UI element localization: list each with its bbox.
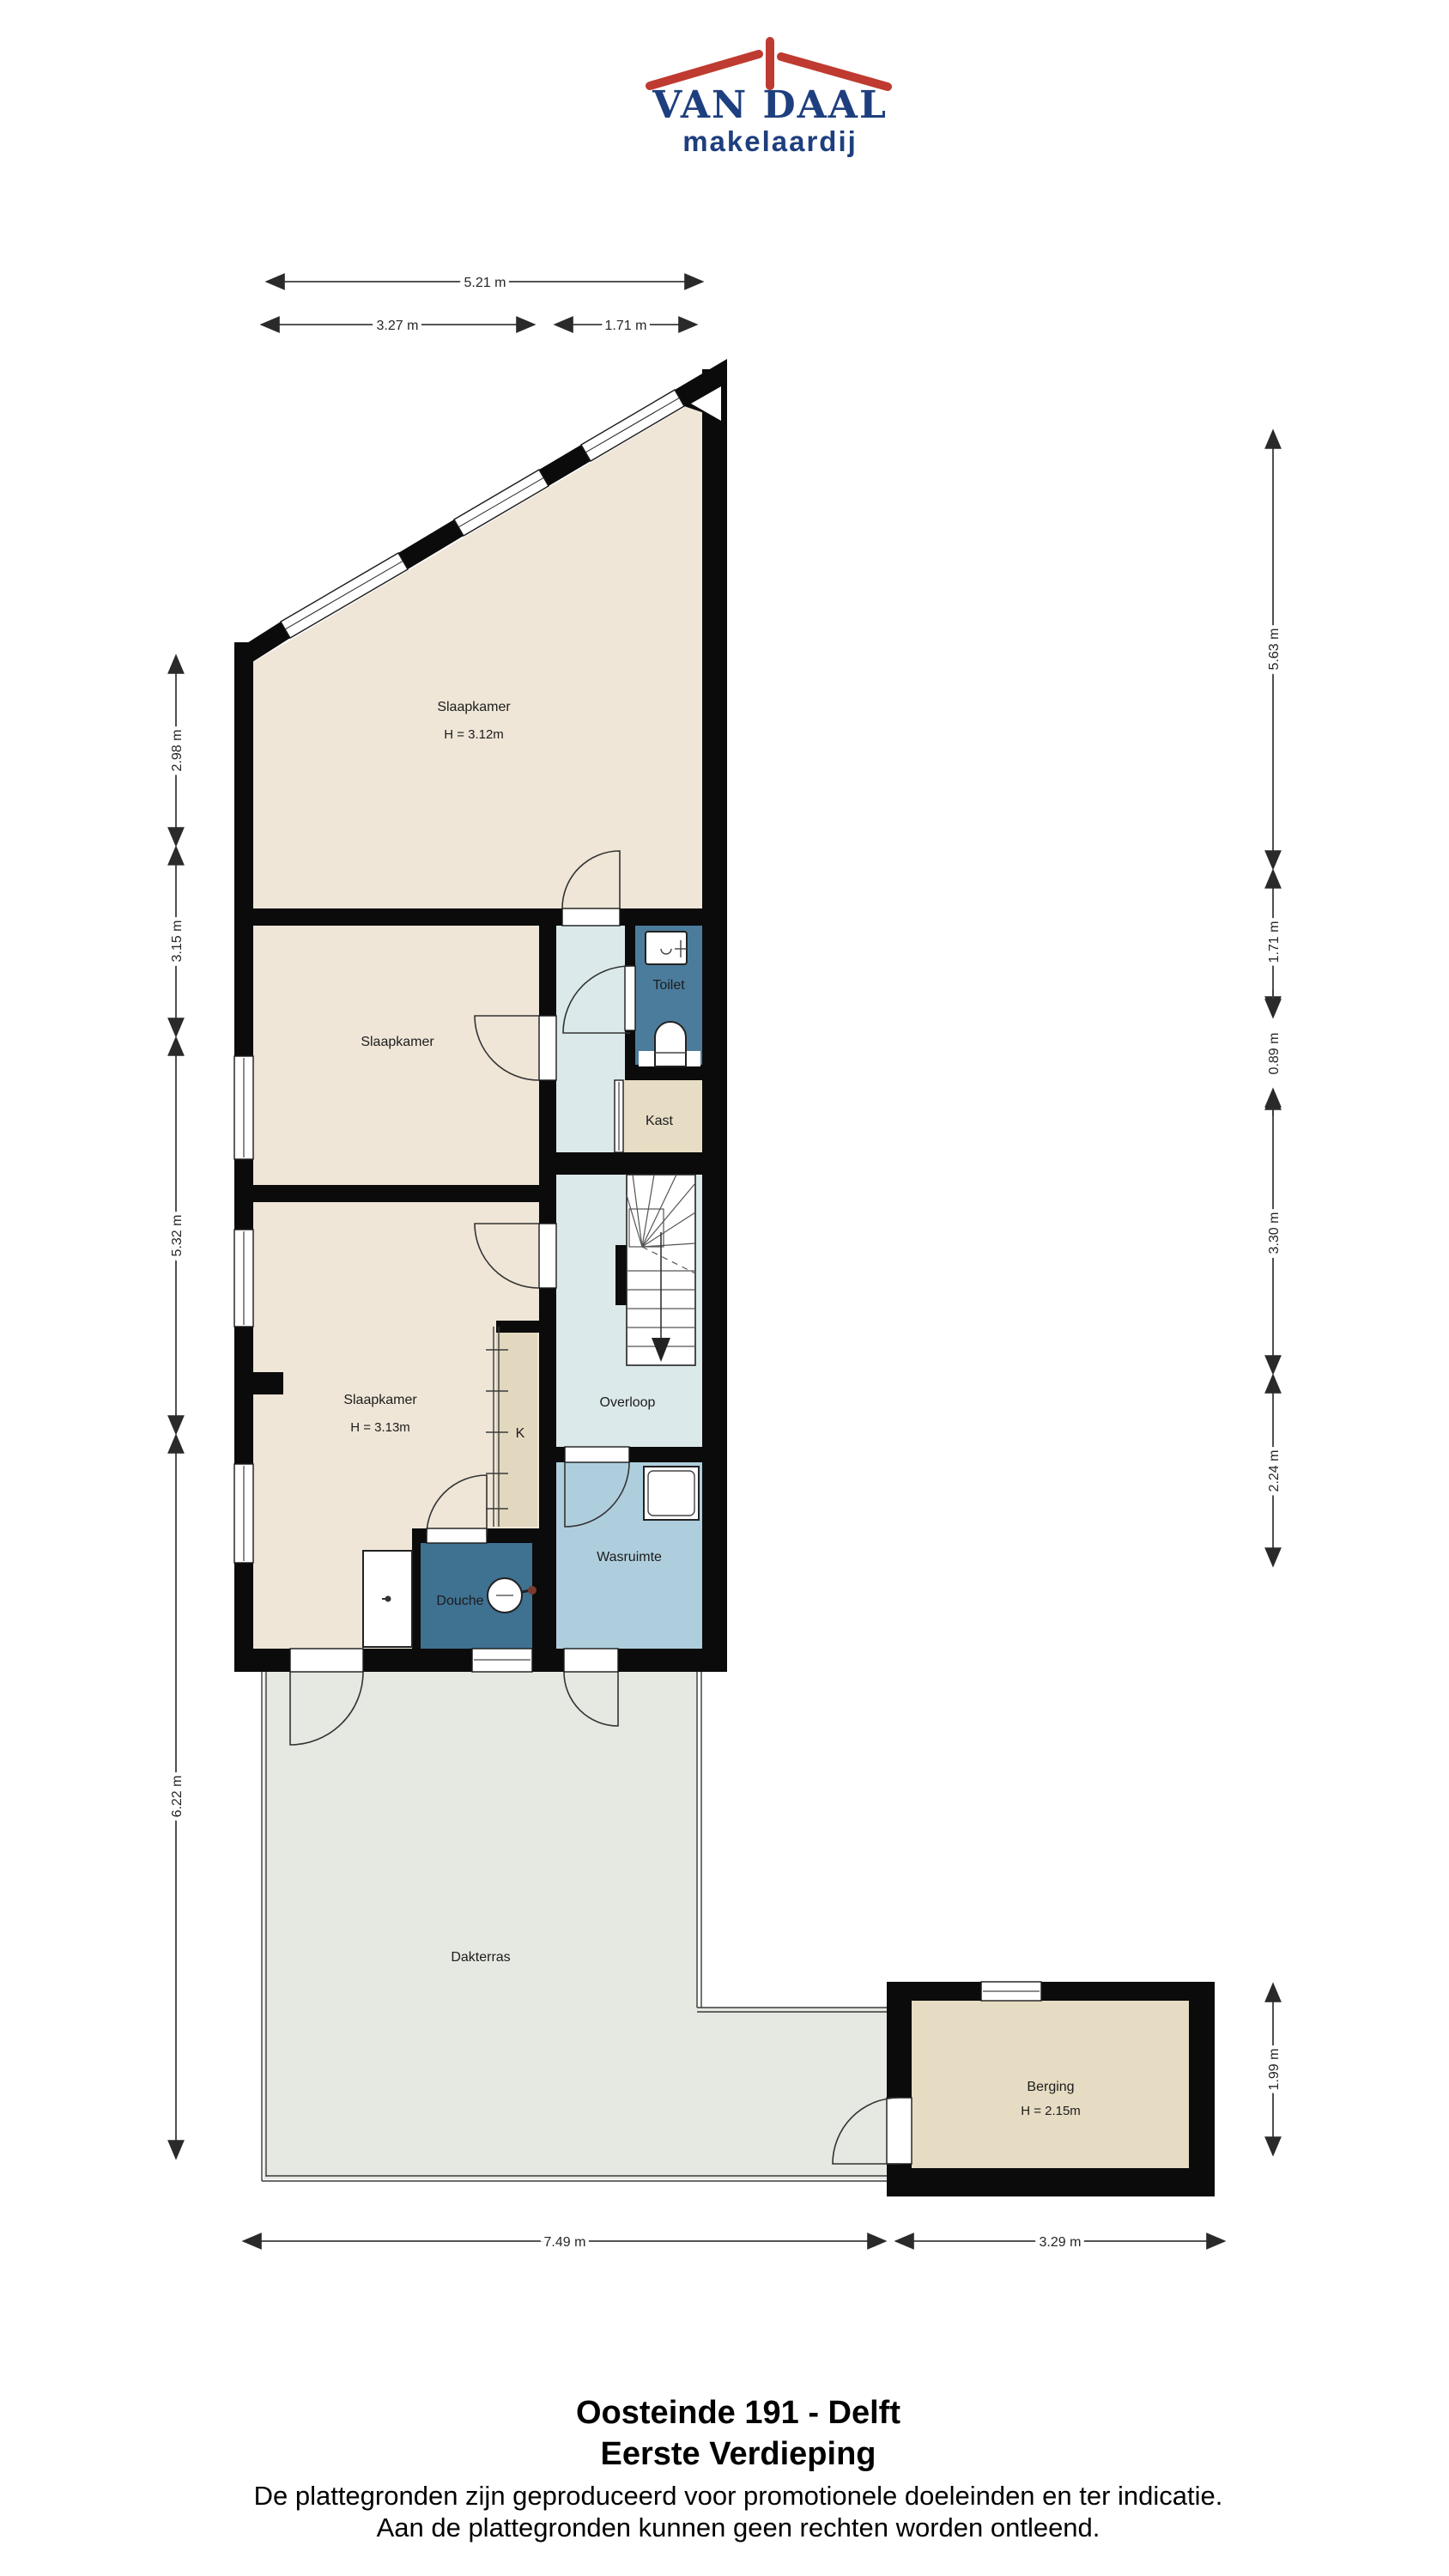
wall-berging-left-a <box>887 1982 912 2098</box>
threshold-douche-door <box>427 1528 487 1543</box>
dim-top-left: 3.27 m <box>377 319 419 333</box>
threshold-terrace-door-2 <box>564 1649 618 1672</box>
threshold-toilet-door <box>625 966 635 1030</box>
dim-right-3: 0.89 m <box>1267 1033 1282 1075</box>
label-slaapkamer2: Slaapkamer <box>361 1035 434 1049</box>
disclaimer-line-2: Aan de plattegronden kunnen geen rechten… <box>377 2512 1100 2543</box>
footer: Oosteinde 191 - Delft Eerste Verdieping … <box>254 2395 1223 2543</box>
label-wasruimte: Wasruimte <box>597 1550 662 1564</box>
wall-bedroom1-b <box>620 908 702 926</box>
wall-douche-top-a <box>412 1528 427 1543</box>
label-slaapkamer1-height: H = 3.12m <box>444 727 504 742</box>
wall-bottom-1 <box>234 1649 290 1672</box>
wall-berging-left-b <box>887 2164 912 2196</box>
roof-left-line <box>650 54 759 86</box>
label-slaapkamer3-height: H = 3.13m <box>350 1420 410 1435</box>
logo-name: VAN DAAL <box>652 83 888 127</box>
slaapkamer1-fill <box>253 397 702 926</box>
wall-bedroom1-a <box>253 908 562 926</box>
label-slaapkamer1: Slaapkamer <box>437 700 511 714</box>
label-overloop: Overloop <box>600 1395 656 1410</box>
wall-bottom-4 <box>618 1649 727 1672</box>
shower-valve <box>528 1586 537 1595</box>
wall-kast-bottom <box>556 1152 702 1175</box>
label-k: K <box>516 1426 525 1441</box>
dim-right-5: 2.24 m <box>1267 1450 1282 1492</box>
cabinet-icon <box>363 1551 412 1647</box>
wall-left-2 <box>234 1159 253 1230</box>
threshold-terrace-door-1 <box>290 1649 363 1672</box>
dim-right-1: 5.63 m <box>1267 629 1282 671</box>
dim-bottom-1: 7.49 m <box>544 2235 586 2250</box>
wall-right <box>702 369 727 1672</box>
label-berging-height: H = 2.15m <box>1021 2104 1081 2118</box>
roof-icon <box>650 41 888 87</box>
dim-right-6: 1.99 m <box>1267 2049 1282 2091</box>
page-subtitle: Eerste Verdieping <box>600 2436 876 2472</box>
wall-berging-bottom <box>887 2168 1215 2196</box>
wall-bottom-3 <box>532 1649 564 1672</box>
wall-bedroom2-3 <box>253 1185 556 1202</box>
wall-left-stub <box>253 1372 283 1394</box>
wall-toilet-left-a <box>625 926 635 966</box>
label-douche: Douche <box>436 1594 483 1608</box>
label-berging: Berging <box>1027 2080 1074 2094</box>
roof-right-line <box>781 57 888 87</box>
threshold-berging-door <box>887 2098 912 2164</box>
sink-icon <box>646 932 687 964</box>
threshold-bedroom1-door <box>562 908 620 926</box>
dim-left-2: 3.15 m <box>170 920 185 963</box>
washing-machine-icon <box>644 1467 699 1520</box>
disclaimer-line-1: De plattegronden zijn geproduceerd voor … <box>254 2481 1223 2511</box>
floorplan-svg: VAN DAAL makelaardij <box>0 0 1449 2576</box>
wall-left-3 <box>234 1327 253 1464</box>
dim-left-1: 2.98 m <box>170 730 185 772</box>
dim-top-overall: 5.21 m <box>464 276 506 290</box>
wall-berging-right <box>1189 1982 1215 2196</box>
stairs-icon <box>627 1175 695 1365</box>
dakterras-fill <box>264 1672 887 2179</box>
dim-bottom-2: 3.29 m <box>1040 2235 1082 2250</box>
page-title: Oosteinde 191 - Delft <box>576 2395 900 2431</box>
wall-berging-top-b <box>1041 1982 1215 2001</box>
dim-top-right: 1.71 m <box>605 319 647 333</box>
label-dakterras: Dakterras <box>451 1950 510 1965</box>
agency-logo: VAN DAAL makelaardij <box>650 41 888 157</box>
label-slaapkamer3: Slaapkamer <box>343 1393 417 1407</box>
wall-douche-left <box>412 1543 421 1649</box>
wall-hall-was-b <box>629 1447 702 1462</box>
threshold-bedroom2-door <box>539 1016 556 1080</box>
threshold-wasruimte-door <box>565 1447 629 1462</box>
label-kast: Kast <box>646 1114 674 1128</box>
wall-stairs-stub <box>615 1245 627 1305</box>
wall-hall-a <box>539 908 556 1016</box>
threshold-bedroom3-door <box>539 1224 556 1288</box>
floorplan-page: VAN DAAL makelaardij <box>0 0 1449 2576</box>
wall-hall-was-a <box>556 1447 565 1462</box>
dim-left-3: 5.32 m <box>170 1215 185 1257</box>
wall-left-1 <box>234 642 253 1056</box>
wall-bottom-2 <box>363 1649 472 1672</box>
wall-toilet-left-b <box>625 1030 635 1073</box>
wall-hall-c <box>539 1288 556 1528</box>
wall-hall-b <box>539 1080 556 1224</box>
logo-tagline: makelaardij <box>682 125 858 157</box>
slaapkamer2-fill <box>253 926 539 1185</box>
dim-right-4: 3.30 m <box>1267 1212 1282 1255</box>
label-toilet: Toilet <box>652 978 685 993</box>
dim-left-4: 6.22 m <box>170 1776 185 1818</box>
dim-right-2: 1.71 m <box>1267 921 1282 963</box>
